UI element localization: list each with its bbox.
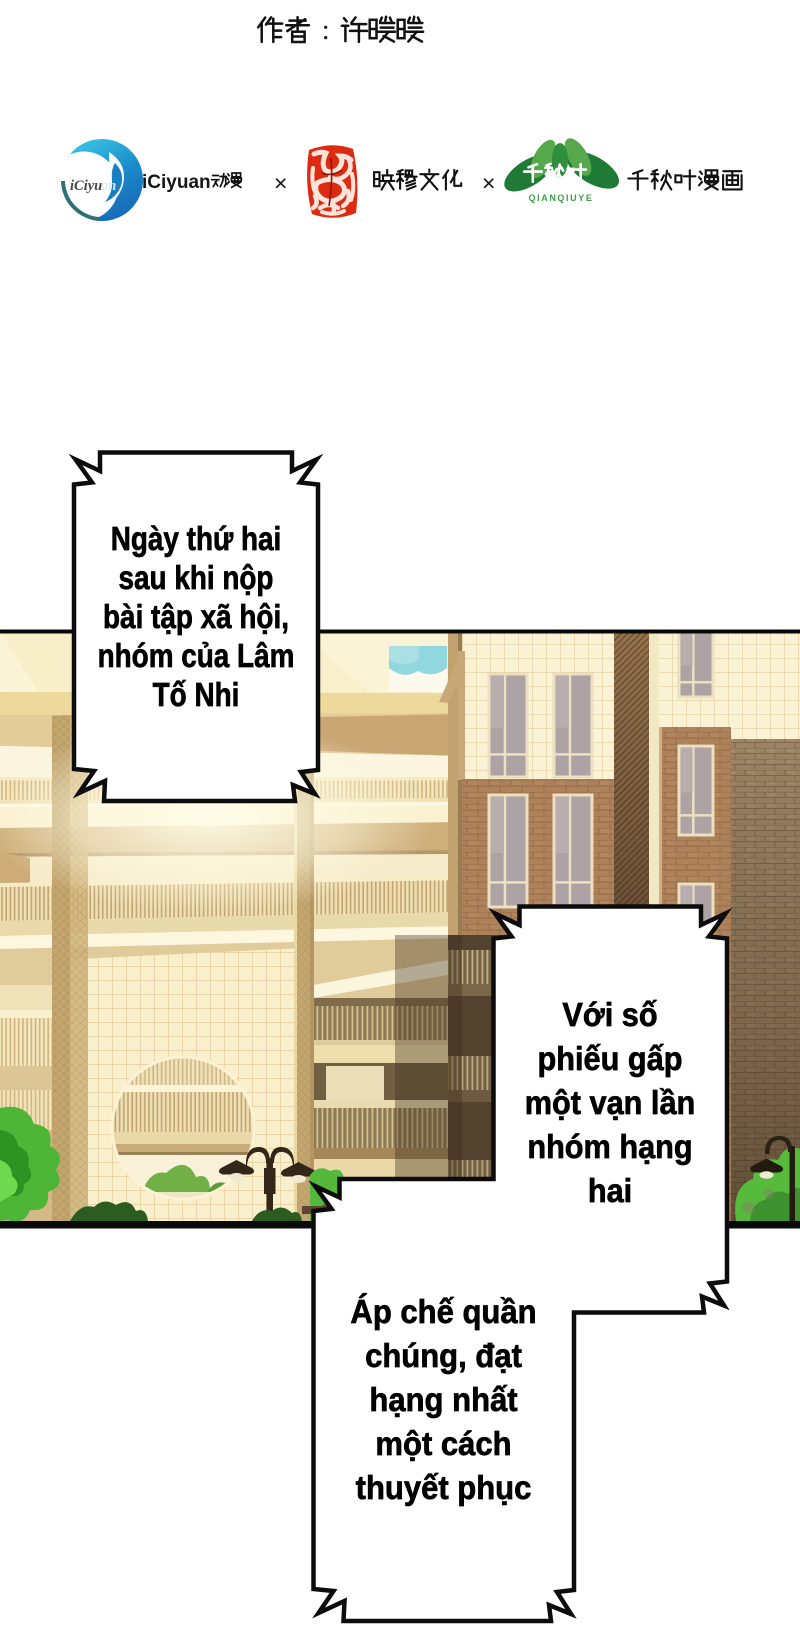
- svg-text:×: ×: [482, 170, 495, 196]
- svg-text:QIANQIUYE: QIANQIUYE: [529, 193, 594, 203]
- svg-text:iCiyu: iCiyu: [70, 178, 102, 194]
- svg-text:iCiyuan: iCiyuan: [142, 172, 211, 193]
- svg-text:×: ×: [274, 170, 287, 196]
- svg-text:an: an: [101, 178, 116, 194]
